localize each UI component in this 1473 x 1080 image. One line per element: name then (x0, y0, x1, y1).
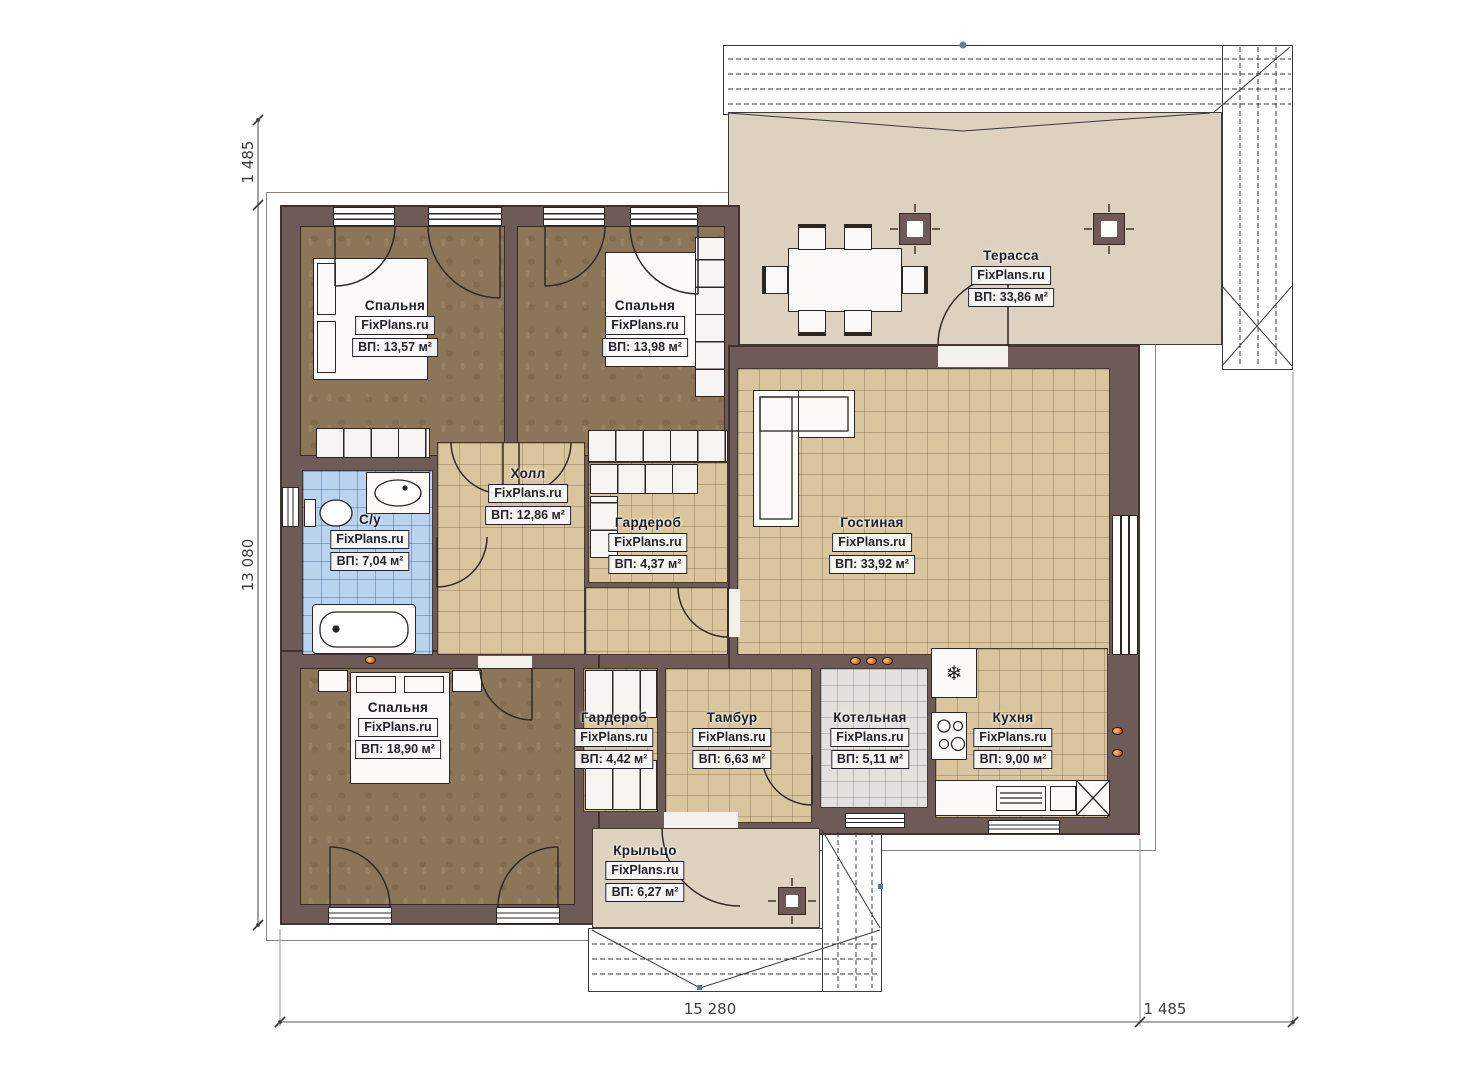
brand-watermark: FixPlans.ru (692, 728, 771, 747)
terrace-column (1094, 214, 1124, 244)
vent-dot (850, 657, 861, 665)
room-area: ВП: 18,90 м² (355, 740, 441, 759)
room-name: Спальня (615, 298, 675, 313)
vent-dot (1112, 727, 1123, 735)
room-area: ВП: 6,63 м² (693, 750, 772, 769)
nightstand (452, 670, 482, 692)
room-area: ВП: 5,11 м² (831, 750, 909, 769)
living-door-gap (729, 589, 740, 637)
pillow (317, 321, 336, 373)
dimension-top-left: 1 485 (239, 132, 257, 192)
vent-dot (866, 657, 877, 665)
room-name: Терасса (983, 248, 1039, 263)
room-name: Спальня (365, 298, 425, 313)
room-name: С/у (359, 512, 381, 527)
room-label-wardrobe1: Гардероб FixPlans.ru ВП: 4,37 м² (608, 515, 687, 574)
brand-watermark: FixPlans.ru (605, 316, 684, 335)
room-name: Кухня (993, 710, 1034, 725)
chair (902, 266, 928, 294)
nightstand (318, 670, 348, 692)
terrace-table (788, 248, 902, 312)
brand-watermark: FixPlans.ru (574, 728, 653, 747)
brand-watermark: FixPlans.ru (330, 530, 409, 549)
bathtub (312, 604, 416, 654)
room-label-living: Гостиная FixPlans.ru ВП: 33,92 м² (829, 515, 915, 574)
vent-dot (882, 657, 893, 665)
room-area: ВП: 12,86 м² (485, 506, 571, 525)
terrace-roof-top (723, 45, 1293, 115)
room-name: Крыльцо (613, 843, 677, 858)
chair (798, 224, 826, 250)
room-name: Холл (510, 466, 545, 481)
pillow (404, 676, 444, 693)
chair (844, 310, 872, 336)
brand-watermark: FixPlans.ru (605, 861, 684, 880)
terrace-column (900, 214, 930, 244)
room-name: Котельная (833, 710, 906, 725)
brand-watermark: FixPlans.ru (832, 533, 911, 552)
sofa-left-section (753, 390, 799, 527)
chair (762, 266, 788, 294)
room-label-bedroom-tr: Спальня FixPlans.ru ВП: 13,98 м² (602, 298, 688, 357)
brand-watermark: FixPlans.ru (488, 484, 567, 503)
closet-row-wardrobe1 (588, 430, 728, 462)
closet-row-bedroom-tl (316, 428, 430, 458)
room-area: ВП: 13,98 м² (602, 338, 688, 357)
room-label-boiler: Котельная FixPlans.ru ВП: 5,11 м² (830, 710, 909, 769)
room-name: Гардероб (581, 710, 647, 725)
brand-watermark: FixPlans.ru (973, 728, 1052, 747)
brand-watermark: FixPlans.ru (358, 718, 437, 737)
brand-watermark: FixPlans.ru (830, 728, 909, 747)
room-label-terrace: Терасса FixPlans.ru ВП: 33,86 м² (968, 248, 1054, 307)
room-area: ВП: 4,42 м² (575, 750, 654, 769)
chair (798, 310, 826, 336)
dimension-left: 13 080 (239, 530, 257, 600)
kitchen-sink (1050, 786, 1076, 811)
room-area: ВП: 13,57 м² (352, 338, 438, 357)
window (1112, 515, 1138, 655)
brand-watermark: FixPlans.ru (971, 266, 1050, 285)
room-name: Тамбур (707, 710, 758, 725)
room-area: ВП: 33,86 м² (968, 288, 1054, 307)
dimension-bottom-right: 1 485 (1120, 1000, 1210, 1018)
floor-plan-canvas: ❄ (0, 0, 1473, 1080)
corridor-floor (585, 587, 728, 655)
room-label-wardrobe2: Гардероб FixPlans.ru ВП: 4,42 м² (574, 710, 653, 769)
bedroom-bl-door-gap (478, 656, 532, 668)
room-label-bedroom-tl: Спальня FixPlans.ru ВП: 13,57 м² (352, 298, 438, 357)
room-name: Спальня (368, 700, 428, 715)
pillow (356, 676, 396, 693)
window (328, 907, 392, 924)
porch-door-gap (664, 812, 738, 828)
window (496, 907, 560, 924)
room-area: ВП: 9,00 м² (974, 750, 1053, 769)
brand-watermark: FixPlans.ru (355, 316, 434, 335)
freezer-icon: ❄ (932, 649, 976, 697)
room-area: ВП: 4,37 м² (609, 555, 688, 574)
window (988, 820, 1060, 834)
room-label-bedroom-bl: Спальня FixPlans.ru ВП: 18,90 м² (355, 700, 441, 759)
chair (844, 224, 872, 250)
window (543, 207, 605, 226)
terrace-roof-right (1222, 45, 1293, 370)
sink-counter (366, 472, 430, 514)
corner-cabinet (1076, 780, 1110, 816)
closet-column-bedroom-tr (695, 237, 725, 397)
room-area: ВП: 6,27 м² (606, 883, 685, 902)
window (428, 207, 502, 226)
pillow (317, 263, 336, 315)
room-label-tambour: Тамбур FixPlans.ru ВП: 6,63 м² (692, 710, 771, 769)
room-label-bathroom: С/у FixPlans.ru ВП: 7,04 м² (330, 512, 409, 571)
room-area: ВП: 33,92 м² (829, 555, 915, 574)
window (282, 487, 299, 527)
toilet-tank (304, 499, 316, 527)
dishwasher (996, 786, 1046, 811)
dimension-bottom-width: 15 280 (650, 1000, 770, 1018)
room-area: ВП: 7,04 м² (331, 552, 410, 571)
window (845, 813, 905, 828)
brand-watermark: FixPlans.ru (608, 533, 687, 552)
room-label-porch: Крыльцо FixPlans.ru ВП: 6,27 м² (605, 843, 684, 902)
terrace-door-gap (938, 346, 1008, 367)
fridge: ❄ (931, 648, 977, 698)
window (630, 207, 698, 226)
window (333, 207, 395, 226)
room-name: Гостиная (840, 515, 903, 530)
room-label-hall: Холл FixPlans.ru ВП: 12,86 м² (485, 466, 571, 525)
porch-roof-right (822, 830, 882, 992)
room-name: Гардероб (615, 515, 681, 530)
kitchen-counter-left (931, 712, 967, 760)
closet-row-wardrobe1-inner (590, 464, 698, 494)
porch-column (779, 888, 805, 914)
vent-dot (1112, 749, 1123, 757)
vent-dot (365, 656, 376, 664)
room-label-kitchen: Кухня FixPlans.ru ВП: 9,00 м² (973, 710, 1052, 769)
